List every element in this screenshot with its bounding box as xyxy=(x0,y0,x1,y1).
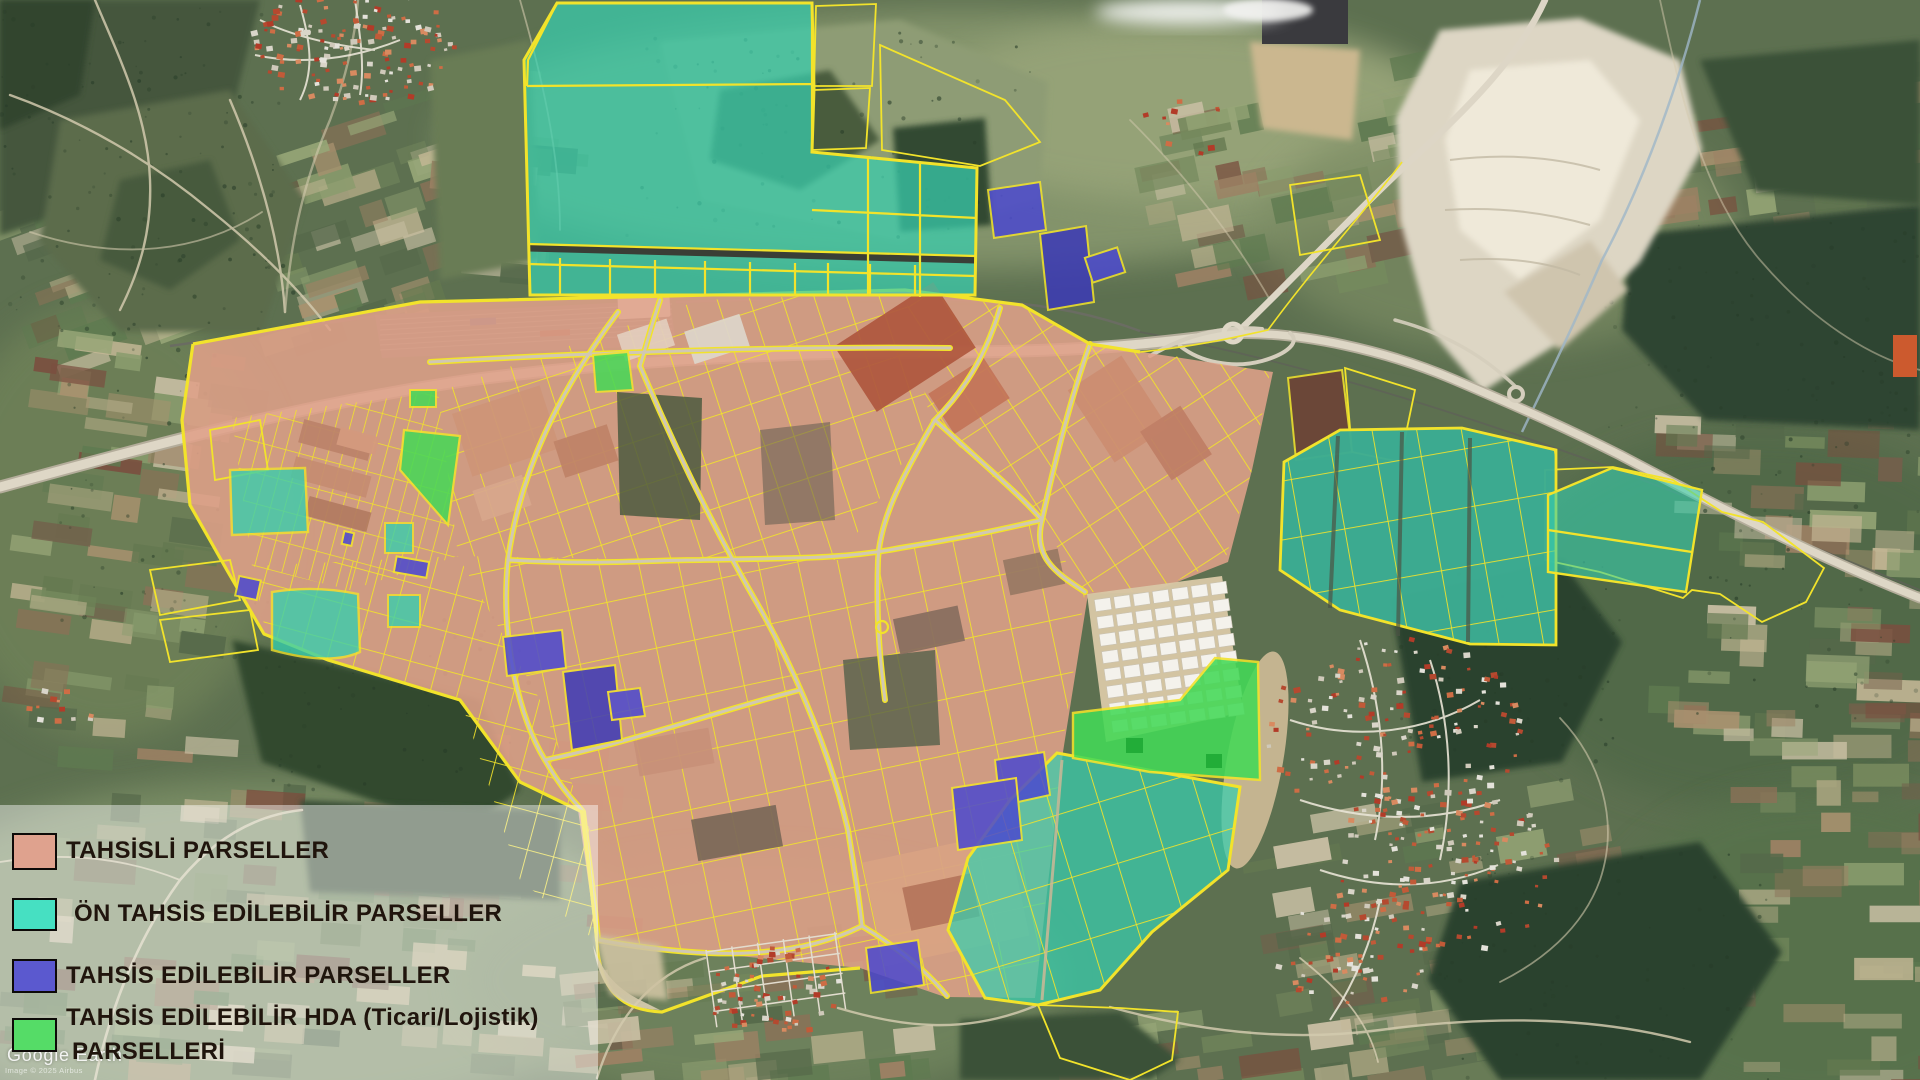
legend-label: ÖN TAHSİS EDİLEBİLİR PARSELLER xyxy=(74,902,502,926)
legend-label: TAHSİSLİ PARSELLER xyxy=(66,839,329,863)
legend-label-line2: PARSELLERİ xyxy=(72,1040,225,1064)
legend-swatch-on-tahsis xyxy=(12,898,57,931)
legend-label: TAHSİS EDİLEBİLİR PARSELLER xyxy=(66,964,451,988)
legend-swatch-tahsisli xyxy=(12,833,57,870)
legend-swatch-hda xyxy=(12,1018,57,1052)
legend-label: TAHSİS EDİLEBİLİR HDA (Ticari/Lojistik) xyxy=(66,1006,539,1030)
imagery-credit: Image © 2025 Airbus xyxy=(5,1066,83,1075)
google-earth-viewport[interactable]: Google Earth Image © 2025 Airbus TAHSİSL… xyxy=(0,0,1920,1080)
legend-swatch-tahsis-edilebilir xyxy=(12,959,57,993)
